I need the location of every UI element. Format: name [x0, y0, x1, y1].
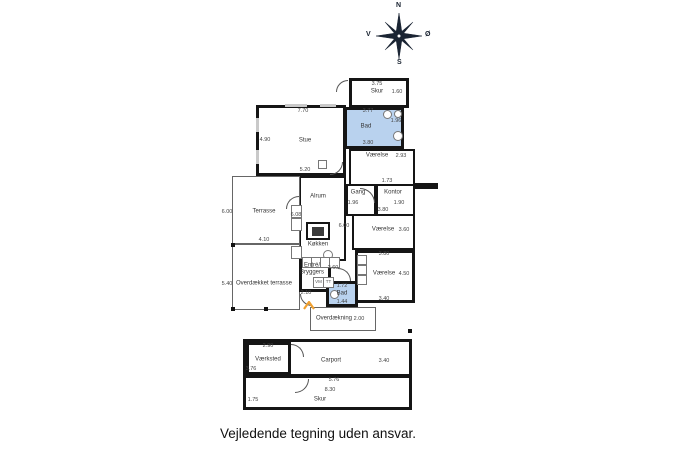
dim: 1.44 — [337, 299, 348, 305]
window — [256, 150, 259, 164]
cabinet-icon — [291, 246, 302, 259]
post — [408, 329, 412, 333]
wardrobe-icon — [357, 265, 367, 275]
dim: 3.80 — [363, 140, 374, 146]
room-label-terrasse: Terrasse — [252, 209, 275, 216]
wardrobe-icon — [357, 275, 367, 285]
dim: 1.96 — [391, 118, 402, 124]
room-label-skur-bottom: Skur — [314, 397, 326, 404]
post — [264, 307, 268, 311]
dim: 1.75 — [248, 397, 259, 403]
dim: 2.60 — [328, 265, 339, 271]
dim: 2.10 — [301, 290, 312, 296]
wall — [246, 374, 409, 378]
dim: 3.75 — [372, 81, 383, 87]
dim: 1.73 — [382, 178, 393, 184]
room-label-alrum: Alrum — [310, 194, 326, 201]
disclaimer-text: Vejledende tegning uden ansvar. — [220, 426, 416, 441]
window — [256, 118, 259, 132]
dim: 2.90 — [263, 343, 274, 349]
room-label-bryggers: Bryggers — [300, 270, 324, 277]
dim: 5.40 — [222, 281, 233, 287]
room-label-kontor: Kontor — [384, 190, 402, 197]
room-label-stue: Stue — [299, 138, 311, 145]
dim: 1.90 — [394, 200, 405, 206]
dim: 6.08 — [291, 212, 302, 218]
wardrobe-icon — [357, 255, 367, 265]
room-label-bad-small: Bad — [337, 291, 348, 298]
post — [231, 243, 235, 247]
dim: 3.76 — [246, 366, 257, 372]
wood-stove-icon — [318, 160, 327, 169]
room-label-skur-top: Skur — [371, 89, 383, 96]
room-label-vaerelse-e: Værelse — [372, 227, 394, 234]
room-label-gang: Gang — [351, 190, 366, 197]
dim: 3.80 — [379, 251, 390, 257]
dim: 3.40 — [379, 358, 390, 364]
dim: 3.80 — [378, 207, 389, 213]
wall-stub — [415, 183, 438, 189]
shower-icon — [393, 131, 403, 141]
dim: 4.50 — [399, 271, 410, 277]
dim: 8.30 — [325, 387, 336, 393]
compass-north-label: N — [396, 2, 401, 9]
room-label-koekken: Køkken — [308, 242, 328, 249]
room-label-overdaekket-terrasse: Overdækket terrasse — [236, 281, 292, 288]
dryer-icon: TT — [323, 277, 334, 288]
kitchen-island — [306, 222, 330, 240]
compass-south-label: S — [397, 59, 402, 66]
room-label-entre: Entré/ — [304, 263, 320, 270]
dim: 2.93 — [396, 153, 407, 159]
room-label-vaerksted: Værksted — [255, 357, 281, 364]
entrance-arrow-icon — [303, 301, 315, 310]
door-arc — [336, 80, 348, 92]
compass-star-icon — [368, 5, 430, 67]
dim: 4.10 — [259, 237, 270, 243]
room-label-vaerelse-ne: Værelse — [366, 153, 388, 160]
room-label-vaerelse-se: Værelse — [373, 271, 395, 278]
dim: 5.20 — [300, 167, 311, 173]
room-label-bad-top: Bad — [361, 124, 372, 131]
room-label-overdaekning: Overdækning — [316, 316, 352, 323]
oven-icon — [291, 218, 302, 231]
compass-east-label: Ø — [425, 31, 430, 38]
dim: 1.72 — [337, 283, 348, 289]
compass-west-label: V — [366, 31, 371, 38]
room-label-carport: Carport — [321, 358, 341, 365]
dim: 3.77 — [363, 108, 374, 114]
dim: 5.76 — [329, 377, 340, 383]
area-overdaekket-terrasse — [232, 244, 300, 310]
door-arc — [338, 268, 351, 281]
dim: 1.60 — [392, 89, 403, 95]
dim: 6.00 — [339, 223, 350, 229]
window — [285, 104, 307, 107]
compass-rose: N V Ø S — [368, 5, 430, 67]
post — [231, 307, 235, 311]
window — [320, 104, 336, 107]
cooktop-icon — [312, 227, 324, 236]
sink-icon — [394, 110, 402, 118]
dim: 3.60 — [399, 227, 410, 233]
dim: 1.96 — [348, 200, 359, 206]
dim: 7.70 — [298, 108, 309, 114]
dim: 4.90 — [260, 137, 271, 143]
dim: 6.00 — [222, 209, 233, 215]
dim: 2.00 — [354, 316, 365, 322]
dim: 3.40 — [379, 296, 390, 302]
floor-plan-canvas: N V Ø S 3.75 Skur 1.60 3.77 Bad 1.96 3.8… — [0, 0, 687, 457]
